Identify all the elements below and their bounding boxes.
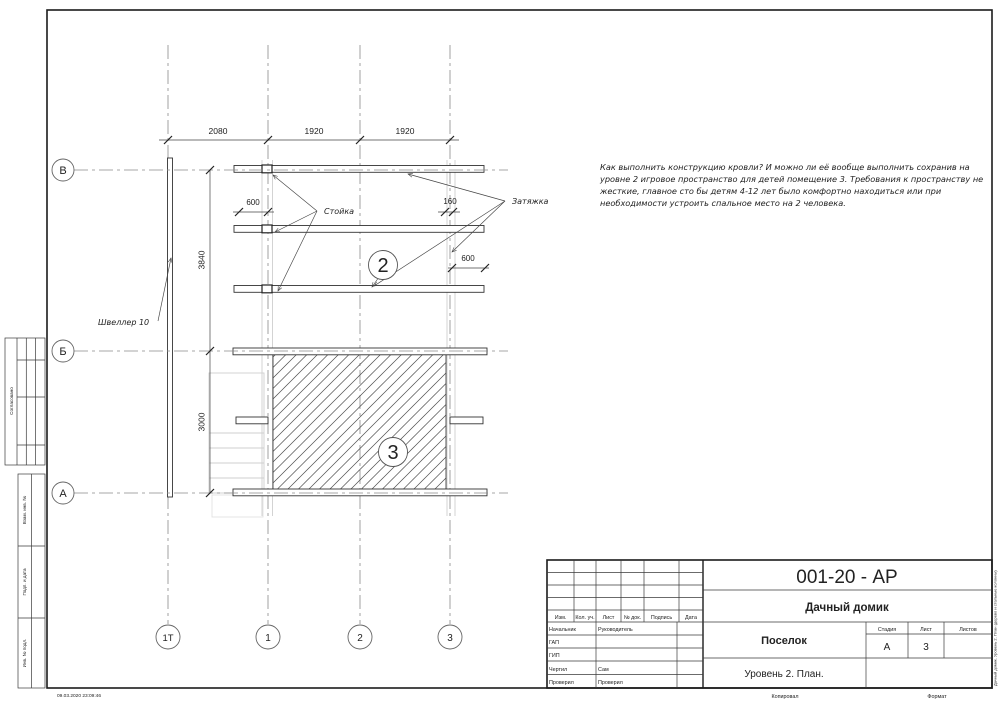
axis-col-1T: 1Т — [162, 633, 173, 644]
post-connector — [262, 285, 272, 293]
project-name: Дачный домик — [805, 602, 889, 614]
approved-label: Согласовано — [9, 387, 14, 415]
axis-col-3: 3 — [447, 633, 453, 644]
col-doc: № док. — [624, 615, 641, 621]
podp-data-label: Подп. и дата — [22, 568, 27, 596]
dim-1920a: 1920 — [305, 126, 324, 136]
name-4: Проверил — [598, 680, 623, 686]
edge-note: Дачный домик. Уровень 2. План (дерево и … — [993, 570, 998, 686]
vzam-inv-label: Взам. инв. № — [22, 496, 27, 525]
dimension-left: 3840 3000 — [197, 166, 215, 497]
channel-member — [168, 158, 173, 497]
dim-600-right: 600 — [461, 254, 475, 263]
left-margin-stamps: Согласовано Взам. инв. № Подп. и дата Ин… — [5, 338, 45, 688]
dimension-top: 2080 1920 1920 — [159, 126, 459, 144]
dimension-small: 600 160 600 — [233, 197, 489, 272]
tie-label: Затяжка — [512, 197, 549, 206]
axis-col-1: 1 — [265, 633, 271, 644]
note-line-4: необходимости устроить спальное место на… — [600, 198, 846, 208]
note-line-3: жесткие, главное сто бы детям 4-12 лет б… — [599, 186, 942, 196]
title-block: Изм. Кол. уч. Лист № док. Подпись Дата Н… — [547, 560, 992, 688]
inv-podl-label: Инв. № подл. — [22, 639, 27, 668]
name-3: Сам — [598, 667, 609, 673]
dim-3000: 3000 — [197, 412, 207, 431]
dim-160: 160 — [443, 197, 457, 206]
object-name: Поселок — [761, 635, 807, 647]
role-3: Чертил — [549, 667, 567, 673]
role-2: ГИП — [549, 653, 560, 659]
dim-600-left: 600 — [246, 198, 260, 207]
post-label: Стойка — [324, 207, 354, 216]
drawing-sheet: Согласовано Взам. инв. № Подп. и дата Ин… — [0, 0, 1000, 706]
copied-label: Копировал — [771, 694, 798, 700]
dim-3840: 3840 — [197, 250, 207, 269]
col-list: Лист — [603, 615, 615, 621]
list-label: Лист — [920, 627, 932, 633]
post-connector — [262, 225, 272, 233]
format-label: Формат — [927, 694, 947, 700]
col-data: Дата — [685, 615, 697, 621]
role-4: Проверил — [549, 680, 574, 686]
lists-label: Листов — [959, 627, 977, 633]
note-line-2: уровне 2 игровое пространство для детей … — [599, 174, 983, 184]
sheet-number: 3 — [923, 642, 929, 653]
stage-value: А — [884, 642, 891, 653]
dim-1920b: 1920 — [396, 126, 415, 136]
hatched-room-area — [273, 354, 446, 492]
callouts: Швеллер 10 Стойка Затяжка — [98, 174, 549, 327]
cad-canvas: Согласовано Взам. инв. № Подп. и дата Ин… — [0, 0, 1000, 706]
channel-label: Швеллер 10 — [98, 318, 149, 327]
axis-row-A: А — [59, 488, 67, 500]
note-line-1: Как выполнить конструкцию кровли? И можн… — [600, 162, 970, 172]
col-podpis: Подпись — [651, 615, 673, 621]
room-3-number: 3 — [387, 442, 398, 464]
room-2-number: 2 — [377, 255, 388, 277]
sheet-title: Уровень 2. План. — [744, 669, 823, 680]
axis-col-2: 2 — [357, 633, 363, 644]
col-kol: Кол. уч. — [575, 615, 594, 621]
plot-timestamp: 09.03.2020 23:09:46 — [57, 693, 101, 699]
dim-2080: 2080 — [209, 126, 228, 136]
post-connector — [262, 165, 272, 173]
axis-row-B: Б — [59, 346, 66, 358]
document-code: 001-20 - АР — [796, 567, 897, 588]
role-1: ГАП — [549, 640, 559, 646]
annotation-note: Как выполнить конструкцию кровли? И можн… — [599, 162, 983, 208]
role-0: Начальник — [549, 627, 577, 633]
col-izm: Изм. — [555, 615, 567, 621]
stage-label: Стадия — [878, 627, 896, 633]
axis-row-V: В — [59, 165, 66, 177]
name-0: Руководитель — [598, 627, 633, 633]
